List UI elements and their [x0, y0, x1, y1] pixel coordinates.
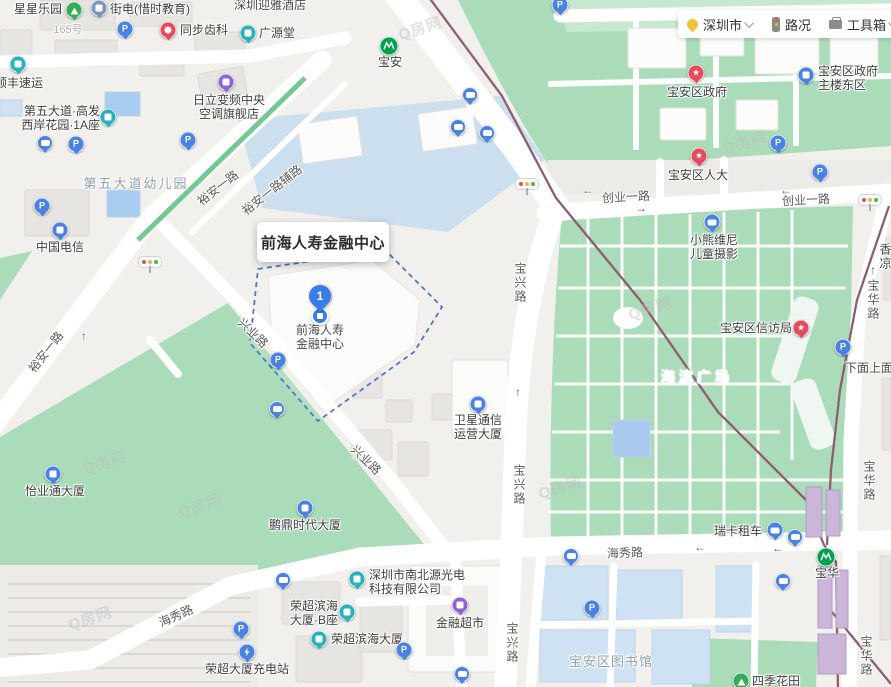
parking-icon: P	[817, 168, 823, 177]
parking-icon: P	[775, 139, 781, 148]
city-label: 深圳市	[703, 15, 742, 34]
brand-watermark: Q房网	[721, 125, 770, 159]
traffic-toggle[interactable]: 路况	[763, 10, 820, 38]
parking-marker[interactable]: P	[770, 135, 787, 152]
bus-icon	[466, 92, 475, 98]
metro-station-marker[interactable]	[817, 548, 836, 567]
tree-icon	[70, 3, 78, 14]
area-label: 165号	[53, 23, 82, 37]
nanbeiyuan-guangdian-label: 深圳市南北源光电科技有限公司	[369, 568, 465, 596]
poi-label-line: 大厦·B座	[290, 613, 338, 627]
zhengfu-zhulou-dongqu-marker[interactable]	[798, 67, 815, 84]
poi-label-line: 深圳市南北源光电	[369, 568, 465, 582]
express-icon	[15, 61, 22, 68]
road-label: 宝华路	[859, 635, 873, 677]
selected-poi-label: 前海人寿 金融中心	[296, 323, 344, 351]
poi-label-line: 荣超滨海大厦	[331, 632, 403, 646]
poi-label-line: 荣超滨海	[290, 599, 338, 613]
guangyuantang-marker[interactable]	[240, 25, 257, 42]
poi-label-line: 儿童摄影	[690, 247, 738, 261]
road-label: 海秀路	[607, 545, 643, 560]
pengding-shidai-dasha-marker[interactable]	[297, 500, 314, 517]
tongbu-chike-label: 同步齿科	[180, 23, 228, 37]
building-icon	[475, 401, 482, 408]
metro-station-label: 宝安	[378, 55, 402, 69]
area-label: 海滨广场	[661, 370, 733, 384]
road-label: ↑	[870, 263, 876, 277]
area-label: 深圳迎雅酒店	[234, 0, 306, 12]
zhengfu-zhulou-dongqu-label: 宝安区政府主楼东区	[818, 64, 878, 92]
brand-watermark: Q房网	[81, 445, 130, 479]
poi-label-line: 星星乐园	[14, 2, 62, 16]
parking-marker[interactable]: P	[812, 164, 829, 181]
city-selector[interactable]: 深圳市	[678, 10, 763, 38]
star-icon: ★	[695, 152, 703, 161]
rongchao-chongdianzhan-marker[interactable]	[239, 644, 256, 661]
bus-stop-marker[interactable]	[450, 119, 466, 135]
shop-icon	[223, 79, 230, 86]
parking-icon: P	[840, 343, 846, 352]
road-label: →	[635, 201, 647, 215]
ruika-zuche-label: 瑞卡租车	[714, 524, 762, 538]
traffic-signal-icon	[138, 256, 162, 268]
building-icon	[803, 72, 810, 79]
traffic-signal-icon	[858, 194, 882, 206]
xiaoxiong-weini-label: 小熊维尼儿童摄影	[690, 233, 738, 261]
rongchao-binhai-b-marker[interactable]	[339, 604, 356, 621]
traffic-light-icon	[772, 17, 780, 32]
parking-icon: P	[401, 646, 407, 655]
bus-icon	[279, 577, 288, 583]
bus-icon	[454, 124, 463, 130]
bus-stop-marker[interactable]	[275, 572, 291, 588]
selected-poi-popup[interactable]: 前海人寿金融中心	[257, 222, 389, 262]
poi-label-line: 四季花田	[752, 674, 800, 687]
xingxing-leyuan-label: 星星乐园	[14, 2, 62, 16]
area-label: 宝安区图书馆	[569, 655, 653, 669]
poi-label-line: 运营大厦	[454, 427, 502, 441]
metro-logo-icon	[383, 40, 396, 53]
road-label: 宝兴路	[513, 262, 527, 304]
brand-watermark: Q房网	[396, 11, 445, 45]
poi-label-line: 宝安区信访局	[720, 321, 792, 335]
jiedian-xishi-jiaoyu-label: 街电(惜时教育)	[110, 2, 190, 16]
building-icon	[316, 636, 323, 643]
poi-label-line: 第五大道·高发	[21, 104, 100, 118]
phone-icon	[96, 5, 103, 12]
poi-label-line: 主楼东区	[818, 78, 878, 92]
area-label: 香凉	[878, 243, 891, 271]
road-label: ↑	[511, 638, 517, 652]
road-label: 裕安一路	[195, 168, 241, 209]
bus-icon	[791, 534, 800, 540]
building-icon	[302, 505, 309, 512]
parking-marker[interactable]: P	[835, 339, 852, 356]
brand-watermark: Q房网	[626, 291, 675, 325]
road-label: ↑	[81, 329, 87, 343]
parking-marker[interactable]: P	[396, 642, 413, 659]
shunfeng-suyun-marker[interactable]	[10, 56, 27, 73]
car-icon	[771, 527, 780, 533]
parking-marker[interactable]: P	[552, 0, 569, 14]
parking-icon: P	[589, 604, 595, 613]
area-label: 第五大道幼儿园	[83, 177, 188, 191]
diwudadao-gaofa-label: 第五大道·高发西岸花园·1A座	[21, 104, 100, 132]
jiedian-xishi-jiaoyu-marker[interactable]	[91, 0, 108, 17]
bus-stop-marker[interactable]	[479, 125, 495, 141]
building-icon	[344, 609, 351, 616]
metro-station-marker[interactable]	[380, 37, 399, 56]
rongchao-binhai-dasha-marker[interactable]	[311, 631, 328, 648]
road-label: 兴业路	[348, 442, 384, 477]
poi-label-line: 科技有限公司	[369, 582, 465, 596]
charging-icon	[244, 648, 251, 657]
brand-watermark: Q房网	[536, 470, 585, 504]
bus-stop-marker[interactable]	[269, 401, 285, 417]
parking-icon: P	[238, 625, 244, 634]
road-label: ←	[582, 183, 594, 197]
road-label: 裕安一路	[26, 329, 67, 375]
area-label: 下面上面	[845, 361, 891, 375]
building-icon	[105, 114, 112, 121]
baoan-qu-xinfangju-label: 宝安区信访局	[720, 321, 792, 335]
traffic-signal-icon	[515, 178, 539, 190]
building-icon	[354, 576, 361, 583]
road-label: 海秀路	[157, 602, 196, 629]
bus-icon	[779, 578, 788, 584]
bus-stop-marker[interactable]	[775, 573, 791, 589]
road-label: 宝华路	[866, 279, 880, 321]
jinrong-chaoshi-marker[interactable]	[452, 597, 469, 614]
poi-label-line: 广源堂	[259, 26, 295, 40]
bus-icon	[567, 553, 576, 559]
traffic-label: 路况	[785, 15, 811, 34]
selected-poi-label-line: 前海人寿	[296, 323, 344, 337]
parking-marker[interactable]: P	[117, 21, 134, 38]
poi-label-line: 同步齿科	[180, 23, 228, 37]
parking-marker[interactable]: P	[180, 132, 197, 149]
poi-label-line: 街电(惜时教育)	[110, 2, 190, 16]
road-label: 兴业路	[235, 315, 271, 350]
siji-huatian-label: 四季花田	[752, 674, 800, 687]
road-label: 宝华路	[862, 460, 876, 502]
baoan-qu-zhengfu-marker[interactable]: ★	[688, 65, 705, 82]
toolbox-label: 工具箱	[847, 15, 886, 34]
selected-poi-label-line: 金融中心	[296, 337, 344, 351]
bus-icon	[273, 406, 282, 412]
baoan-qu-renda-marker[interactable]: ★	[691, 148, 708, 165]
tongbu-chike-marker[interactable]	[160, 22, 177, 39]
parking-icon: P	[557, 1, 563, 10]
poi-label-line: 宝安区政府	[818, 64, 878, 78]
bus-stop-marker[interactable]	[454, 666, 470, 682]
parking-marker[interactable]: P	[34, 198, 51, 215]
metro-station-label: 宝华	[815, 566, 839, 580]
rongchao-binhai-dasha-label: 荣超滨海大厦	[331, 632, 403, 646]
poi-label-line: 西岸花园·1A座	[21, 118, 100, 132]
road-label: 裕安一路辅路	[239, 162, 304, 217]
tree-icon	[737, 674, 745, 685]
parking-icon: P	[185, 136, 191, 145]
bus-icon	[458, 671, 467, 677]
star-icon: ★	[797, 324, 805, 333]
rongchao-binhai-b-label: 荣超滨海大厦·B座	[290, 599, 338, 627]
guangyuantang-label: 广源堂	[259, 26, 295, 40]
toolbox-icon	[829, 20, 842, 29]
road-label: ←	[694, 540, 706, 554]
hitachi-store-label: 日立变频中央空调旗舰店	[193, 93, 265, 121]
metro-logo-icon	[820, 551, 833, 564]
parking-marker[interactable]: P	[68, 136, 85, 153]
selected-poi-pin[interactable]: 1	[309, 285, 331, 307]
xingxing-leyuan-marker[interactable]	[66, 2, 83, 19]
poi-label-line: 空调旗舰店	[193, 107, 265, 121]
siji-huatian-marker[interactable]	[733, 673, 750, 687]
shop-icon	[457, 602, 464, 609]
parking-marker[interactable]: P	[233, 621, 250, 638]
parking-icon: P	[39, 202, 45, 211]
parking-icon: P	[275, 356, 281, 365]
toolbox-button[interactable]: 工具箱	[820, 10, 891, 38]
building-icon	[57, 227, 64, 234]
star-icon: ★	[692, 69, 700, 78]
hitachi-store-marker[interactable]	[218, 74, 235, 91]
location-icon	[685, 16, 701, 32]
parking-marker[interactable]: P	[584, 600, 601, 617]
bus-icon	[483, 130, 492, 136]
brand-watermark: Q房网	[66, 601, 115, 635]
map-overlay: 裕安一路裕安一路辅路裕安一路兴业路兴业路宝兴路宝兴路宝兴路创业一路创业一路海秀路…	[0, 0, 891, 687]
bus-stop-marker[interactable]	[37, 135, 53, 151]
ruika-zuche-marker[interactable]	[767, 522, 784, 539]
parking-icon: P	[73, 140, 79, 149]
parking-icon: P	[122, 25, 128, 34]
shop-icon	[245, 30, 252, 37]
road-label: ←	[780, 183, 792, 197]
bus-stop-marker[interactable]	[563, 548, 579, 564]
nanbeiyuan-guangdian-marker[interactable]	[349, 571, 366, 588]
popup-title: 前海人寿金融中心	[261, 232, 385, 253]
building-icon	[50, 471, 57, 478]
baoan-qu-xinfangju-marker[interactable]: ★	[793, 320, 810, 337]
tooth-icon	[165, 27, 172, 34]
camera-icon	[708, 219, 717, 225]
parking-marker[interactable]: P	[270, 352, 287, 369]
brand-watermark: Q房网	[176, 488, 225, 522]
road-label: ↑	[515, 385, 521, 399]
chevron-down-icon	[744, 18, 754, 28]
xiaoxiong-weini-marker[interactable]	[704, 214, 721, 231]
diwudadao-gaofa-marker[interactable]	[100, 109, 117, 126]
road-label: 宝兴路	[512, 464, 526, 506]
map-app: 裕安一路裕安一路辅路裕安一路兴业路兴业路宝兴路宝兴路宝兴路创业一路创业一路海秀路…	[0, 0, 891, 687]
poi-label-line: 瑞卡租车	[714, 524, 762, 538]
map-toolbar: 深圳市 路况 工具箱	[678, 10, 891, 38]
bus-icon	[41, 140, 50, 146]
zhongguo-dianxin-marker[interactable]	[52, 222, 69, 239]
yiyetong-dasha-marker[interactable]	[45, 466, 62, 483]
pin-number: 1	[309, 285, 331, 307]
bus-stop-marker[interactable]	[787, 529, 803, 545]
weixing-tongxin-dasha-marker[interactable]	[470, 396, 487, 413]
bus-stop-marker[interactable]	[462, 87, 478, 103]
